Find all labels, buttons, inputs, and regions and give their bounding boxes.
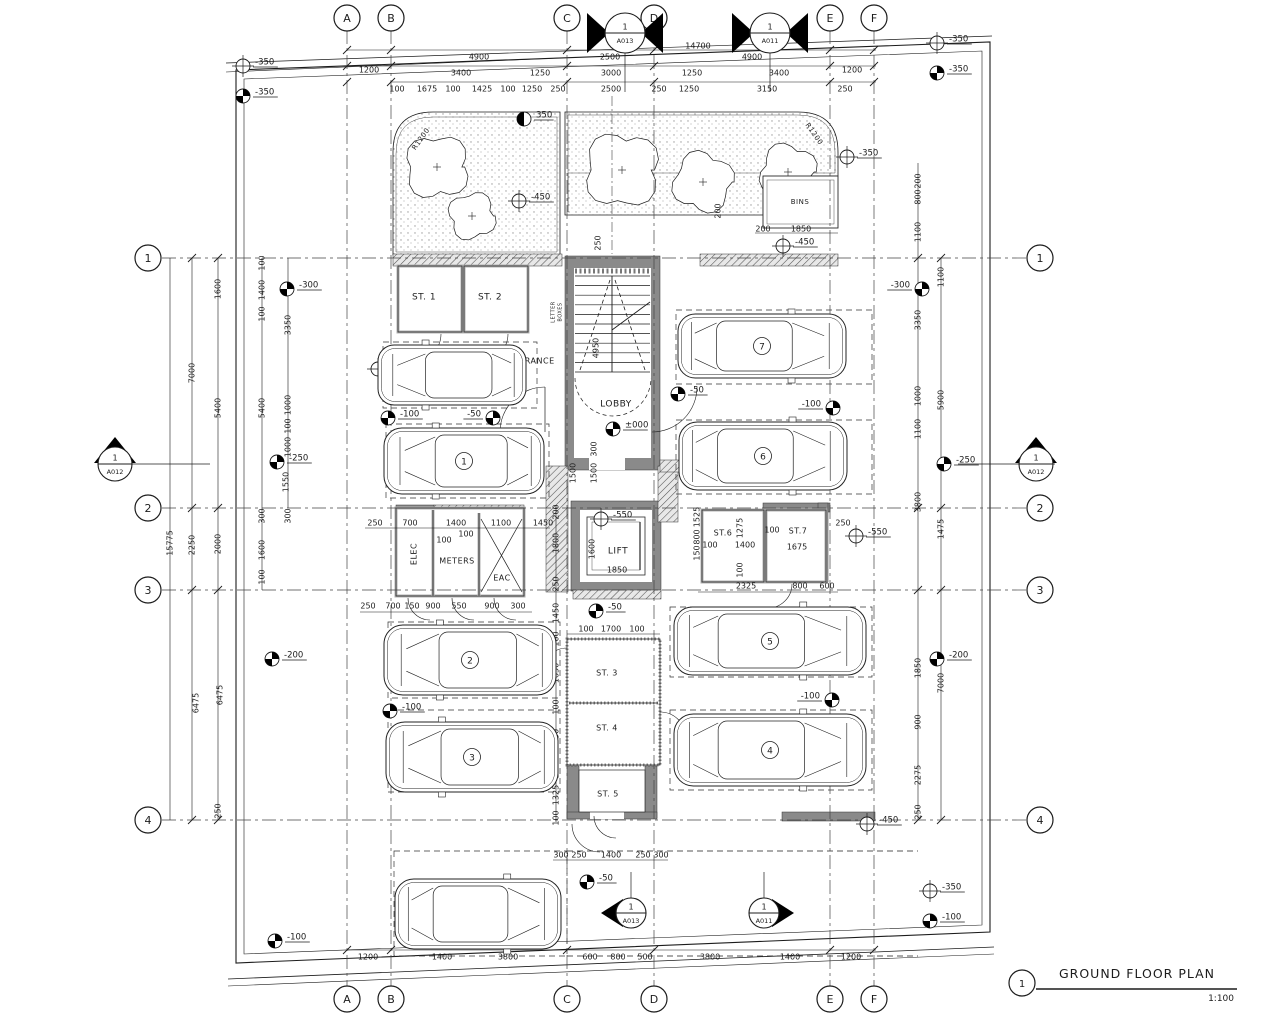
dim-text: 1325 bbox=[552, 785, 561, 805]
dim-text: 100 bbox=[445, 85, 460, 94]
grid-bubble-label: 4 bbox=[145, 814, 152, 827]
room-label-st-5: ST. 5 bbox=[597, 790, 619, 799]
room-label-st-1: ST. 1 bbox=[412, 293, 436, 303]
dim-text: 1600 bbox=[258, 540, 267, 560]
grid-bubble-label: 3 bbox=[1037, 584, 1044, 597]
level-text: -100 bbox=[942, 913, 961, 923]
dim-text: 300 bbox=[590, 441, 599, 456]
level-text: ±000 bbox=[625, 421, 648, 431]
grid-bubble-label: 1 bbox=[145, 252, 152, 265]
dim-text: 550 bbox=[451, 602, 466, 611]
level-text: 350 bbox=[536, 111, 552, 121]
dim-text: 250 bbox=[550, 85, 565, 94]
dim-text: 200 bbox=[714, 203, 723, 218]
wall-hatched bbox=[393, 254, 562, 266]
dim-text: 1000 bbox=[284, 395, 293, 415]
dim-text: 4950 bbox=[592, 338, 601, 358]
dim-text: 4900 bbox=[469, 53, 489, 62]
dim-text: 5400 bbox=[214, 398, 223, 418]
dim-text: 800 bbox=[792, 582, 807, 591]
dim-text: 1100 bbox=[491, 519, 511, 528]
dim-text: 100 bbox=[258, 255, 267, 270]
section-detail-number: 1 bbox=[112, 454, 117, 463]
room-label-st-7: ST.7 bbox=[789, 527, 808, 536]
dim-text: 6475 bbox=[192, 693, 201, 713]
dim-text: 1400 bbox=[258, 280, 267, 300]
room-label-st-6: ST.6 bbox=[714, 529, 733, 538]
dim-text: 1850 bbox=[607, 566, 627, 575]
dim-text: 1475 bbox=[937, 519, 946, 539]
grid-bubble-label: B bbox=[387, 12, 395, 25]
dim-text: 800 bbox=[693, 529, 702, 544]
dim-text: 4900 bbox=[742, 53, 762, 62]
drawing-scale: 1:100 bbox=[1208, 994, 1234, 1004]
dim-text: 2000 bbox=[214, 534, 223, 554]
section-sheet-number: A011 bbox=[756, 917, 773, 925]
dim-text: 6475 bbox=[216, 685, 225, 705]
dim-text: 1400 bbox=[780, 953, 800, 962]
level-text: -250 bbox=[956, 456, 975, 466]
room-label-st-3: ST. 3 bbox=[596, 669, 618, 678]
dim-text: 1275 bbox=[736, 518, 745, 538]
dim-text: 7000 bbox=[937, 673, 946, 693]
room-label-elec: ELEC bbox=[410, 543, 419, 565]
dim-text: 300 bbox=[284, 508, 293, 523]
dim-text: 700 bbox=[402, 519, 417, 528]
level-text: -350 bbox=[949, 65, 968, 75]
level-text: -450 bbox=[531, 193, 550, 203]
level-text: -350 bbox=[255, 58, 274, 68]
dim-text: 250 bbox=[914, 804, 923, 819]
grid-bubble-label: 3 bbox=[145, 584, 152, 597]
car-mirror bbox=[436, 620, 443, 625]
car-6: 6 bbox=[679, 417, 847, 495]
dim-text: 200 bbox=[755, 225, 770, 234]
car-4: 4 bbox=[674, 709, 866, 791]
grid-bubble-label: A bbox=[343, 993, 351, 1006]
car-mirror bbox=[789, 417, 796, 422]
grid-bubble-label: B bbox=[387, 993, 395, 1006]
dim-text: 250 bbox=[594, 235, 603, 250]
dim-text: 100 bbox=[629, 625, 644, 634]
level-text: -350 bbox=[255, 88, 274, 98]
dim-text: 250 bbox=[360, 602, 375, 611]
room-label-st-4: ST. 4 bbox=[596, 724, 618, 733]
wall-solid bbox=[645, 766, 657, 818]
dim-text: 900 bbox=[425, 602, 440, 611]
dim-text: 250 bbox=[837, 85, 852, 94]
dim-text: 3800 bbox=[700, 953, 720, 962]
car-optional bbox=[378, 340, 526, 410]
dim-text: 14700 bbox=[685, 42, 710, 51]
car-2: 2 bbox=[384, 620, 556, 700]
level-text: -350 bbox=[949, 35, 968, 45]
grid-bubble-label: E bbox=[827, 993, 834, 1006]
level-text: -250 bbox=[289, 454, 308, 464]
level-text: -100 bbox=[801, 692, 820, 702]
car-mirror bbox=[800, 602, 807, 607]
dim-text: 200 bbox=[552, 504, 561, 519]
dim-text: 1400 bbox=[446, 519, 466, 528]
tree-icon bbox=[587, 134, 659, 205]
dim-text: 100 bbox=[736, 562, 745, 577]
grid-bubble-label: 1 bbox=[1037, 252, 1044, 265]
dim-text: 800 bbox=[610, 953, 625, 962]
car-mirror bbox=[504, 949, 511, 954]
drawing-title: GROUND FLOOR PLAN bbox=[1059, 966, 1215, 981]
dim-text: 100 bbox=[552, 699, 561, 714]
dim-text: 100 bbox=[458, 530, 473, 539]
dim-text: 100 bbox=[389, 85, 404, 94]
dim-text: 1600 bbox=[588, 539, 597, 559]
dim-text: 3000 bbox=[601, 69, 621, 78]
level-text: -300 bbox=[299, 281, 318, 291]
car-mirror bbox=[788, 378, 795, 383]
grid-bubble-label: F bbox=[871, 993, 877, 1006]
dim-text: 1250 bbox=[679, 85, 699, 94]
dim-text: 1400 bbox=[735, 541, 755, 550]
dim-text: 150 bbox=[404, 602, 419, 611]
dim-text: 3350 bbox=[914, 310, 923, 330]
section-sheet-number: A013 bbox=[617, 37, 634, 45]
level-text: -100 bbox=[287, 933, 306, 943]
dim-text: 3400 bbox=[451, 69, 471, 78]
car-mirror bbox=[432, 494, 439, 499]
dim-text: 3150 bbox=[757, 85, 777, 94]
grid-bubble-label: E bbox=[827, 12, 834, 25]
dim-text: 250 bbox=[552, 576, 561, 591]
wall-hatched bbox=[658, 466, 678, 522]
room-label-boxes: BOXES bbox=[558, 302, 564, 321]
room-label-letter: LETTER bbox=[551, 301, 557, 323]
level-text: -300 bbox=[891, 281, 910, 291]
level-text: -450 bbox=[879, 816, 898, 826]
dim-text: 1500 bbox=[590, 463, 599, 483]
dim-text: 250 bbox=[214, 803, 223, 818]
dim-text: 1200 bbox=[358, 953, 378, 962]
room-label-st-2: ST. 2 bbox=[478, 293, 502, 303]
car-body-group bbox=[378, 340, 526, 410]
car-number: 7 bbox=[759, 343, 765, 353]
car-7: 7 bbox=[678, 309, 846, 383]
dim-text: 900 bbox=[914, 714, 923, 729]
dim-text: 1100 bbox=[937, 267, 946, 287]
dim-text: 250 bbox=[571, 851, 586, 860]
room-label-lobby: LOBBY bbox=[600, 400, 632, 410]
section-detail-number: 1 bbox=[761, 903, 766, 912]
dim-text: 100 bbox=[258, 569, 267, 584]
wall-solid bbox=[567, 766, 579, 818]
dim-text: 300 bbox=[510, 602, 525, 611]
grid-bubble-label: C bbox=[563, 993, 571, 1006]
dim-text: 3400 bbox=[769, 69, 789, 78]
car-number: 4 bbox=[767, 747, 773, 757]
car-number: 6 bbox=[760, 453, 766, 463]
dim-text: 2275 bbox=[914, 765, 923, 785]
dim-text: 1450 bbox=[552, 603, 561, 623]
dim-text: 1100 bbox=[914, 419, 923, 439]
dim-text: 1675 bbox=[787, 543, 807, 552]
car-number: 2 bbox=[467, 657, 473, 667]
car-1: 1 bbox=[384, 423, 544, 499]
dim-text: 100 bbox=[500, 85, 515, 94]
dim-text: 150 bbox=[693, 545, 702, 560]
section-sheet-number: A011 bbox=[762, 37, 779, 45]
level-text: -550 bbox=[868, 528, 887, 538]
dim-text: 100 bbox=[258, 306, 267, 321]
dim-text: 2500 bbox=[601, 85, 621, 94]
room-label-bins: BINS bbox=[791, 198, 810, 206]
wall-hatched bbox=[573, 590, 661, 599]
car-mirror bbox=[800, 675, 807, 680]
car-body-group bbox=[395, 874, 561, 954]
level-text: -350 bbox=[859, 149, 878, 159]
dim-text: 1525 bbox=[693, 507, 702, 527]
car-mirror bbox=[789, 490, 796, 495]
dim-text: 1700 bbox=[601, 625, 621, 634]
st5-door-opening bbox=[590, 812, 624, 819]
dim-text: 2325 bbox=[736, 582, 756, 591]
grid-bubble-label: D bbox=[650, 993, 658, 1006]
room-label-meters: METERS bbox=[439, 557, 475, 566]
dim-text: 250 bbox=[835, 519, 850, 528]
grid-bubble-label: 2 bbox=[1037, 502, 1044, 515]
level-text: -200 bbox=[949, 651, 968, 661]
level-text: -50 bbox=[467, 410, 481, 420]
car-number: 5 bbox=[767, 638, 773, 648]
car-body bbox=[378, 345, 526, 405]
dim-text: 5400 bbox=[258, 398, 267, 418]
section-detail-number: 1 bbox=[622, 23, 627, 32]
level-text: -550 bbox=[613, 511, 632, 521]
section-detail-number: 1 bbox=[628, 903, 633, 912]
dim-text: 300 bbox=[553, 851, 568, 860]
car-number: 1 bbox=[461, 458, 467, 468]
dim-text: 1850 bbox=[914, 658, 923, 678]
dim-text: 1425 bbox=[472, 85, 492, 94]
car-mirror bbox=[800, 786, 807, 791]
level-text: -450 bbox=[795, 238, 814, 248]
dim-text: 3350 bbox=[284, 315, 293, 335]
dim-text: 1450 bbox=[533, 519, 553, 528]
car-mirror bbox=[504, 874, 511, 879]
grid-bubble-label: A bbox=[343, 12, 351, 25]
dim-text: 1200 bbox=[842, 66, 862, 75]
car-mirror bbox=[422, 405, 429, 410]
level-text: -50 bbox=[599, 874, 613, 884]
dim-text: 600 bbox=[582, 953, 597, 962]
dim-text: 1000 bbox=[914, 386, 923, 406]
dim-text: 250 bbox=[635, 851, 650, 860]
dim-text: 100 bbox=[436, 536, 451, 545]
dim-text: 1675 bbox=[417, 85, 437, 94]
level-text: -100 bbox=[402, 703, 421, 713]
dim-text: 1400 bbox=[601, 851, 621, 860]
dim-text: 300 bbox=[258, 508, 267, 523]
car-mirror bbox=[436, 695, 443, 700]
dim-text: 1250 bbox=[682, 69, 702, 78]
car-mirror bbox=[432, 423, 439, 428]
wall-hatched bbox=[700, 254, 838, 266]
dim-text: 900 bbox=[484, 602, 499, 611]
car-mirror bbox=[800, 709, 807, 714]
dim-text: 15775 bbox=[166, 530, 175, 555]
car-body bbox=[395, 879, 561, 949]
car-amea bbox=[395, 874, 561, 954]
car-mirror bbox=[422, 340, 429, 345]
car-mirror bbox=[438, 792, 445, 797]
dim-text: 1100 bbox=[914, 222, 923, 242]
wall-hatched bbox=[660, 460, 680, 472]
dim-text: 2250 bbox=[188, 535, 197, 555]
dim-text: 1500 bbox=[569, 463, 578, 483]
section-detail-number: 1 bbox=[1033, 454, 1038, 463]
room-label-eac: EAC bbox=[493, 574, 510, 583]
car-number: 3 bbox=[469, 754, 475, 764]
dim-text: 100 bbox=[552, 810, 561, 825]
dim-text: 5900 bbox=[937, 390, 946, 410]
level-text: -50 bbox=[608, 603, 622, 613]
dim-text: 1200 bbox=[359, 66, 379, 75]
section-sheet-number: A012 bbox=[1028, 468, 1045, 476]
dim-text: 1550 bbox=[282, 472, 291, 492]
dim-text: 2500 bbox=[600, 53, 620, 62]
car-mirror bbox=[788, 309, 795, 314]
dim-text: 300 bbox=[653, 851, 668, 860]
car-3: 3 bbox=[386, 717, 558, 797]
grid-bubble-label: 2 bbox=[145, 502, 152, 515]
car-5: 5 bbox=[674, 602, 866, 680]
ground-floor-plan-drawing: AABBCCDDEEFF1122334414700490025004900120… bbox=[0, 0, 1280, 1017]
level-text: -50 bbox=[690, 386, 704, 396]
car-mirror bbox=[438, 717, 445, 722]
dim-text: 700 bbox=[385, 602, 400, 611]
dim-text: 100 bbox=[764, 526, 779, 535]
dim-text: 100 bbox=[578, 625, 593, 634]
level-text: -100 bbox=[802, 400, 821, 410]
dim-text: 1600 bbox=[214, 279, 223, 299]
dim-text: 3800 bbox=[914, 492, 923, 512]
dim-text: 1250 bbox=[530, 69, 550, 78]
level-text: -100 bbox=[400, 410, 419, 420]
section-sheet-number: A013 bbox=[623, 917, 640, 925]
dim-text: 1800 bbox=[552, 533, 561, 553]
section-detail-number: 1 bbox=[767, 23, 772, 32]
level-text: -350 bbox=[942, 883, 961, 893]
dim-text: 500 bbox=[637, 953, 652, 962]
dim-text: 100 bbox=[284, 418, 293, 433]
dim-text: 1200 bbox=[841, 953, 861, 962]
dim-text: 1400 bbox=[432, 953, 452, 962]
dim-text: 600 bbox=[819, 582, 834, 591]
floor-plan-page: AABBCCDDEEFF1122334414700490025004900120… bbox=[0, 0, 1280, 1017]
room-label-lift: LIFT bbox=[608, 547, 628, 557]
dim-text: 250 bbox=[651, 85, 666, 94]
detail-number: 1 bbox=[1019, 979, 1025, 990]
dim-text: 250 bbox=[367, 519, 382, 528]
dim-text: 7000 bbox=[188, 363, 197, 383]
grid-bubble-label: F bbox=[871, 12, 877, 25]
dim-text: 1850 bbox=[791, 225, 811, 234]
dim-text: 1250 bbox=[522, 85, 542, 94]
grid-bubble-label: 4 bbox=[1037, 814, 1044, 827]
dim-text: 200 bbox=[914, 173, 923, 188]
section-sheet-number: A012 bbox=[107, 468, 124, 476]
dim-text: 100 bbox=[702, 541, 717, 550]
dim-text: 800 bbox=[914, 189, 923, 204]
level-text: -200 bbox=[284, 651, 303, 661]
grid-bubble-label: C bbox=[563, 12, 571, 25]
